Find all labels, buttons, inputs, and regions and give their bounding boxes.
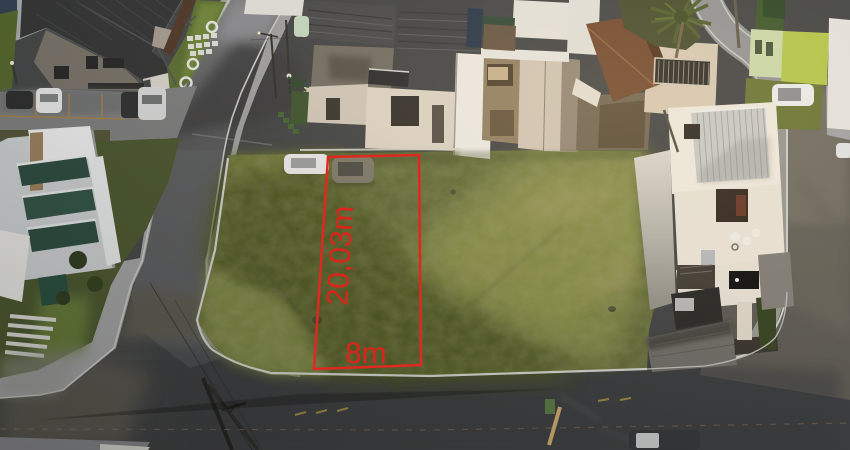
svg-text:20,03m: 20,03m xyxy=(321,205,360,307)
svg-text:8m: 8m xyxy=(345,337,387,370)
